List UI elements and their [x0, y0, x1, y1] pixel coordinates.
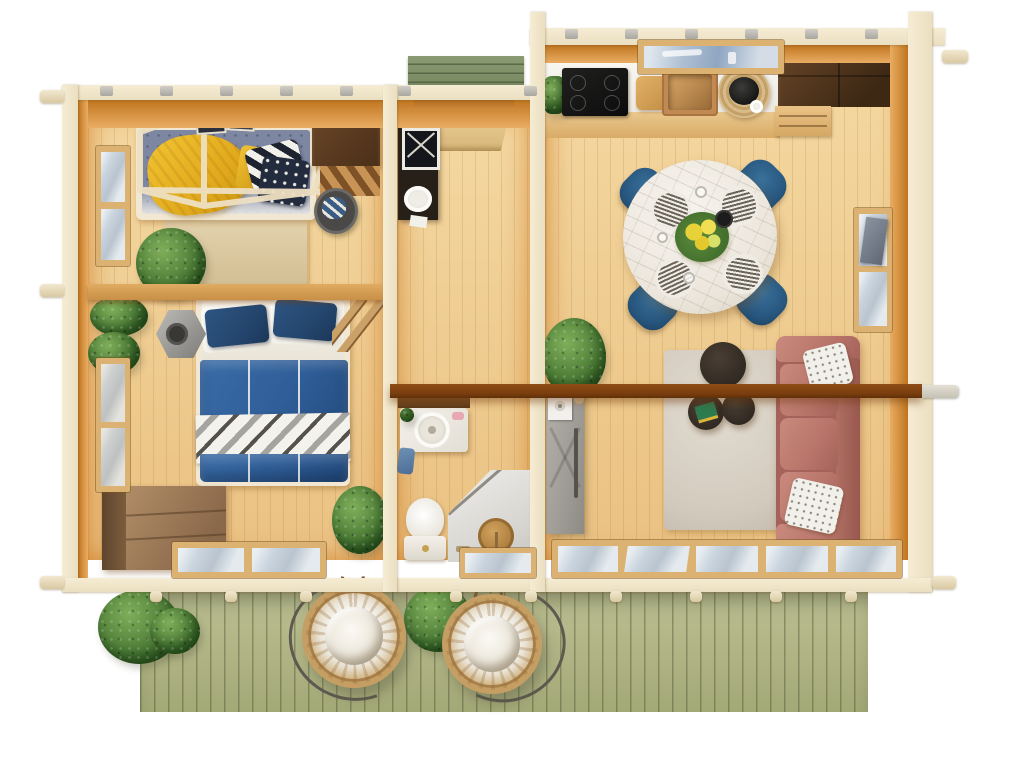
dresser-side: [102, 486, 126, 570]
kitchen-drawers: [775, 106, 831, 136]
window-bedroom2-south: [172, 542, 326, 578]
living-sofa: [776, 336, 860, 550]
wine-glass-4: [657, 232, 668, 243]
coffee-table-books: [688, 394, 724, 430]
walltop-north-leftwing: [62, 85, 540, 100]
bedroom2-ladder: [332, 296, 386, 352]
drawer-line-2: [779, 125, 827, 127]
dining-table: [623, 160, 777, 314]
pane: [624, 546, 690, 572]
skylight-glass: [644, 46, 778, 68]
dresser-line-1: [126, 509, 226, 516]
console-art-frame: [402, 128, 440, 170]
entry-door-recess: [414, 100, 514, 110]
duvet-foot-piping-1: [248, 454, 250, 482]
rafter-tab: [280, 86, 293, 96]
chair2-cushion: [464, 616, 520, 672]
window-living-east: [854, 208, 892, 332]
glazed-doors-living-south: [552, 540, 902, 578]
lantern-opening: [166, 323, 188, 345]
barn-door-handle: [574, 428, 578, 498]
walltop-east: [908, 12, 932, 592]
log-end-east-1: [942, 50, 968, 63]
sliding-barn-door: [546, 388, 584, 534]
drawer-line-1: [779, 115, 827, 117]
log-end-west-2: [40, 284, 64, 297]
window-bathroom-south: [460, 548, 536, 578]
hanging-chair-1: [300, 578, 408, 686]
wallface-left: [78, 95, 88, 592]
walltop-west: [62, 85, 78, 592]
joist-tab: [525, 591, 537, 602]
bed2-navy-pillow-left: [204, 304, 270, 348]
bathroom-towel: [397, 447, 416, 475]
pane: [859, 272, 887, 326]
joist-tab: [225, 591, 237, 602]
rafter-tab: [685, 29, 698, 39]
skylight-reflection-2: [728, 52, 736, 64]
kitchen-sink: [662, 68, 718, 116]
cup: [750, 100, 763, 113]
bed2-navy-pillow-right: [272, 298, 337, 341]
window-bedroom1-west: [96, 146, 130, 266]
black-bowl: [715, 210, 733, 228]
burner-1: [570, 75, 586, 91]
skylight-reflection-1: [662, 49, 702, 57]
beam-tip-east: [922, 385, 958, 398]
toilet-bowl: [406, 498, 444, 540]
bed2-duvet-foot: [200, 454, 348, 482]
pane: [558, 546, 618, 572]
basin-drain: [428, 426, 436, 434]
bedroom1-laundry-basket: [314, 188, 358, 234]
basket-cloth: [322, 197, 346, 219]
walltop-interior-b: [530, 12, 545, 592]
bathroom-vanity: [400, 408, 468, 452]
pane: [178, 548, 244, 572]
duvet-foot-piping-2: [298, 454, 300, 482]
toilet-tank: [404, 536, 446, 560]
rafter-tab: [745, 29, 758, 39]
walltop-interior-a: [383, 85, 397, 592]
walltop-south: [62, 578, 932, 592]
sofa-seat-2: [780, 418, 838, 470]
log-end-east-2: [932, 576, 956, 589]
burner-3: [570, 95, 586, 111]
bedroom2-bed: [196, 296, 350, 486]
rafter-tab: [340, 86, 353, 96]
sink-basin: [668, 74, 712, 110]
entry-console: [398, 124, 438, 220]
chair2-basket: [442, 594, 542, 694]
pane: [101, 428, 125, 486]
pane: [465, 553, 531, 573]
bedroom2-plant: [332, 486, 388, 554]
console-plate: [404, 186, 432, 212]
wine-glass-3: [683, 272, 695, 284]
console-card: [409, 215, 427, 228]
pane: [101, 364, 125, 422]
pane: [252, 548, 320, 572]
burner-2: [604, 75, 620, 91]
bathroom-toilet: [404, 498, 446, 560]
wine-glass-1: [695, 186, 707, 198]
pane: [696, 546, 758, 572]
joist-tab: [300, 591, 312, 602]
vanity-plant: [400, 408, 414, 422]
lock-dial: [555, 401, 565, 411]
cabinet-seam-h: [778, 75, 902, 77]
bathroom-vanity-shelf: [398, 398, 470, 408]
joist-tab: [690, 591, 702, 602]
rafter-tab: [805, 29, 818, 39]
dresser-line-2: [126, 533, 226, 540]
toilet-button: [422, 545, 429, 552]
rafter-tab: [565, 29, 578, 39]
log-end-west-1: [40, 90, 64, 103]
rafter-tab: [524, 86, 537, 96]
collar-beam: [390, 384, 922, 398]
pane: [766, 546, 828, 572]
chair1-cushion: [325, 607, 384, 666]
door-bedroom2-west: [96, 358, 130, 492]
books-stack: [694, 402, 717, 421]
rafter-tab: [160, 86, 173, 96]
rafter-tab: [100, 86, 113, 96]
floorplan-stage: [0, 0, 1024, 768]
pane: [101, 152, 125, 202]
deck-bush-left-small: [150, 608, 200, 654]
joist-tab: [150, 591, 162, 602]
partition-bedrooms: [88, 284, 383, 300]
vanity-soap: [452, 412, 464, 420]
joist-tab: [845, 591, 857, 602]
wallface-right: [890, 45, 908, 560]
joist-tab: [450, 591, 462, 602]
burner-4: [604, 95, 620, 111]
coffee-table-large: [700, 342, 746, 388]
bedroom2-wall-plant-1: [90, 296, 148, 336]
chair1-basket: [302, 584, 406, 688]
rafter-tab: [220, 86, 233, 96]
rafter-tab: [865, 29, 878, 39]
vanity-basin: [414, 412, 450, 448]
rafter-tab: [398, 86, 411, 96]
kitchen-cooktop: [562, 68, 628, 116]
kitchen-skylight: [638, 40, 784, 74]
pane: [101, 209, 125, 260]
log-end-west-3: [40, 576, 64, 589]
joist-tab: [610, 591, 622, 602]
pane: [836, 546, 896, 572]
joist-tab: [770, 591, 782, 602]
rafter-tab: [625, 29, 638, 39]
